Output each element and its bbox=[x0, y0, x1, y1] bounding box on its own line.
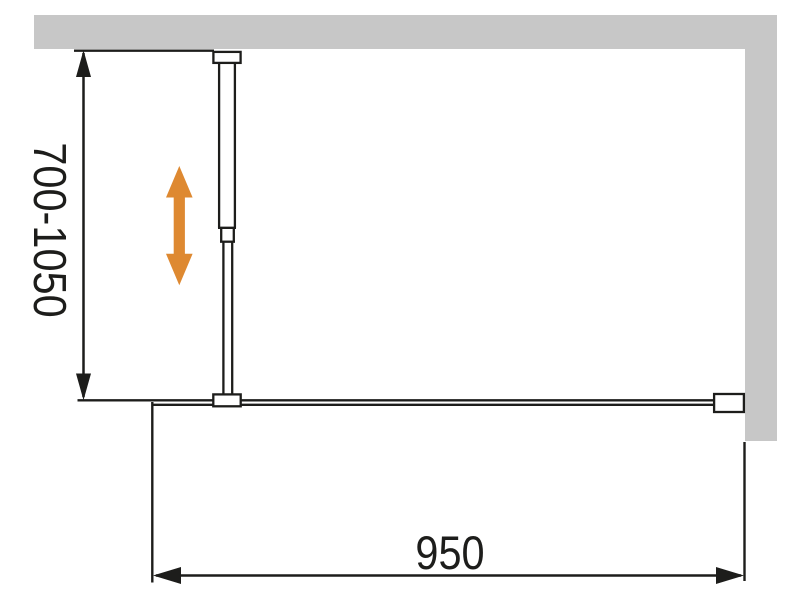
svg-text:950: 950 bbox=[415, 528, 484, 580]
svg-text:700-1050: 700-1050 bbox=[23, 142, 75, 317]
